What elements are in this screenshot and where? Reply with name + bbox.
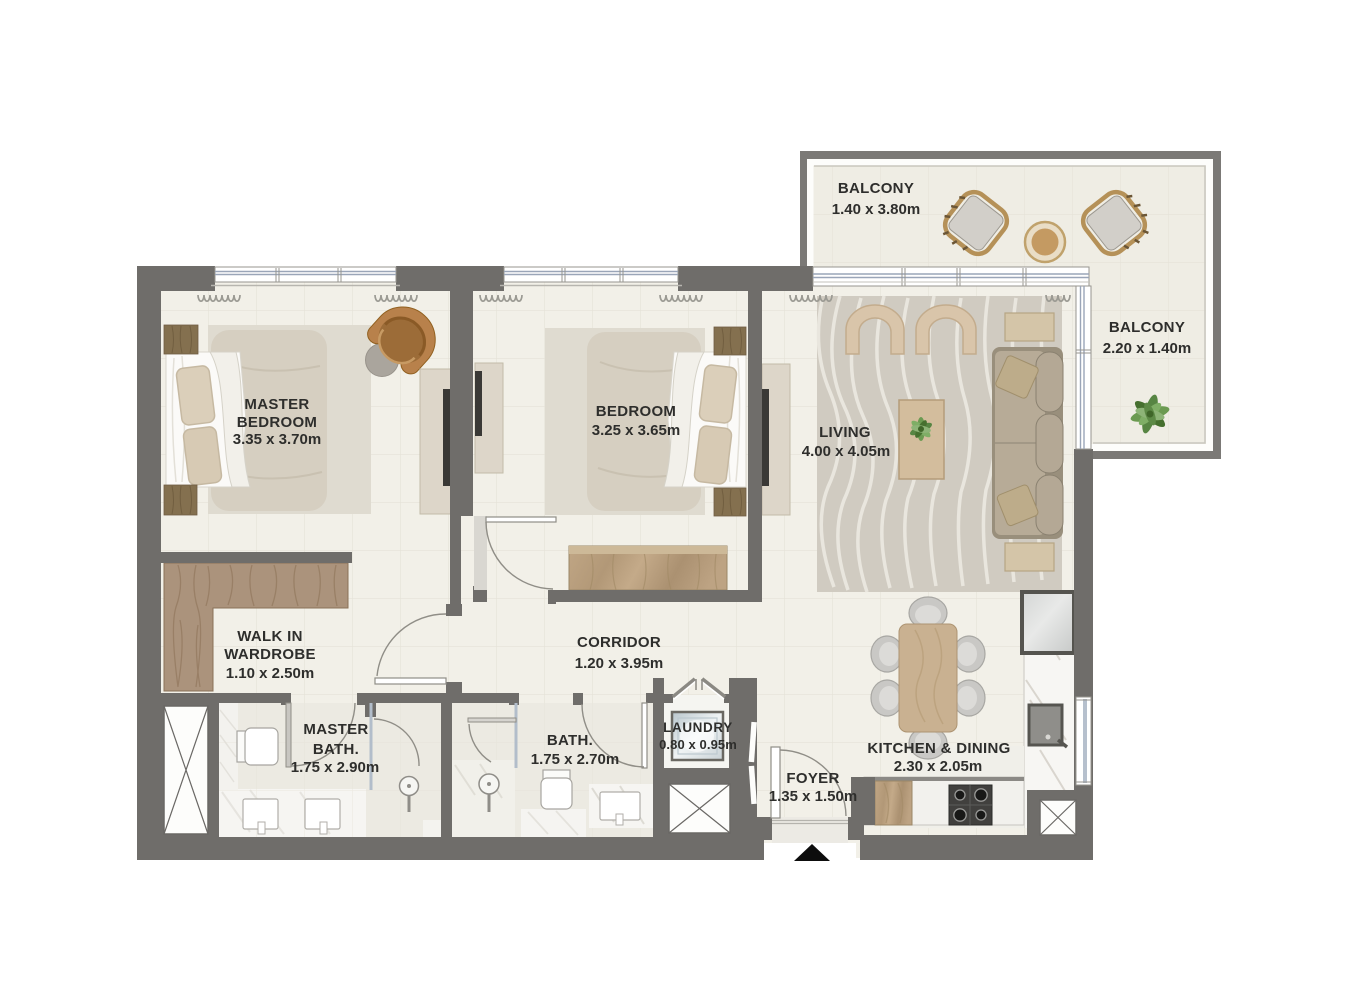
svg-text:WALK IN: WALK IN <box>237 628 302 645</box>
svg-text:1.10 x 2.50m: 1.10 x 2.50m <box>226 665 314 682</box>
svg-text:2.20 x 1.40m: 2.20 x 1.40m <box>1103 340 1191 357</box>
svg-text:3.25 x 3.65m: 3.25 x 3.65m <box>592 422 680 439</box>
svg-text:BEDROOM: BEDROOM <box>237 414 317 431</box>
svg-text:BALCONY: BALCONY <box>1109 319 1185 336</box>
svg-text:MASTER: MASTER <box>244 396 309 413</box>
svg-text:BATH.: BATH. <box>313 741 359 758</box>
svg-text:FOYER: FOYER <box>786 770 839 787</box>
svg-text:0.80 x 0.95m: 0.80 x 0.95m <box>659 737 737 752</box>
svg-text:1.35 x 1.50m: 1.35 x 1.50m <box>769 788 857 805</box>
svg-text:MASTER: MASTER <box>303 721 368 738</box>
svg-text:BATH.: BATH. <box>547 732 593 749</box>
svg-text:LAUNDRY: LAUNDRY <box>663 720 733 735</box>
svg-text:LIVING: LIVING <box>819 424 871 441</box>
svg-text:WARDROBE: WARDROBE <box>224 646 316 663</box>
svg-text:4.00 x 4.05m: 4.00 x 4.05m <box>802 443 890 460</box>
svg-text:2.30 x 2.05m: 2.30 x 2.05m <box>894 758 982 775</box>
svg-text:BEDROOM: BEDROOM <box>596 403 676 420</box>
svg-text:1.75 x 2.70m: 1.75 x 2.70m <box>531 751 619 768</box>
svg-text:BALCONY: BALCONY <box>838 180 914 197</box>
svg-text:1.40 x 3.80m: 1.40 x 3.80m <box>832 201 920 218</box>
svg-text:1.20 x 3.95m: 1.20 x 3.95m <box>575 655 663 672</box>
svg-text:KITCHEN & DINING: KITCHEN & DINING <box>867 740 1010 757</box>
svg-text:CORRIDOR: CORRIDOR <box>577 634 661 651</box>
svg-text:1.75 x 2.90m: 1.75 x 2.90m <box>291 759 379 776</box>
svg-text:3.35 x 3.70m: 3.35 x 3.70m <box>233 431 321 448</box>
